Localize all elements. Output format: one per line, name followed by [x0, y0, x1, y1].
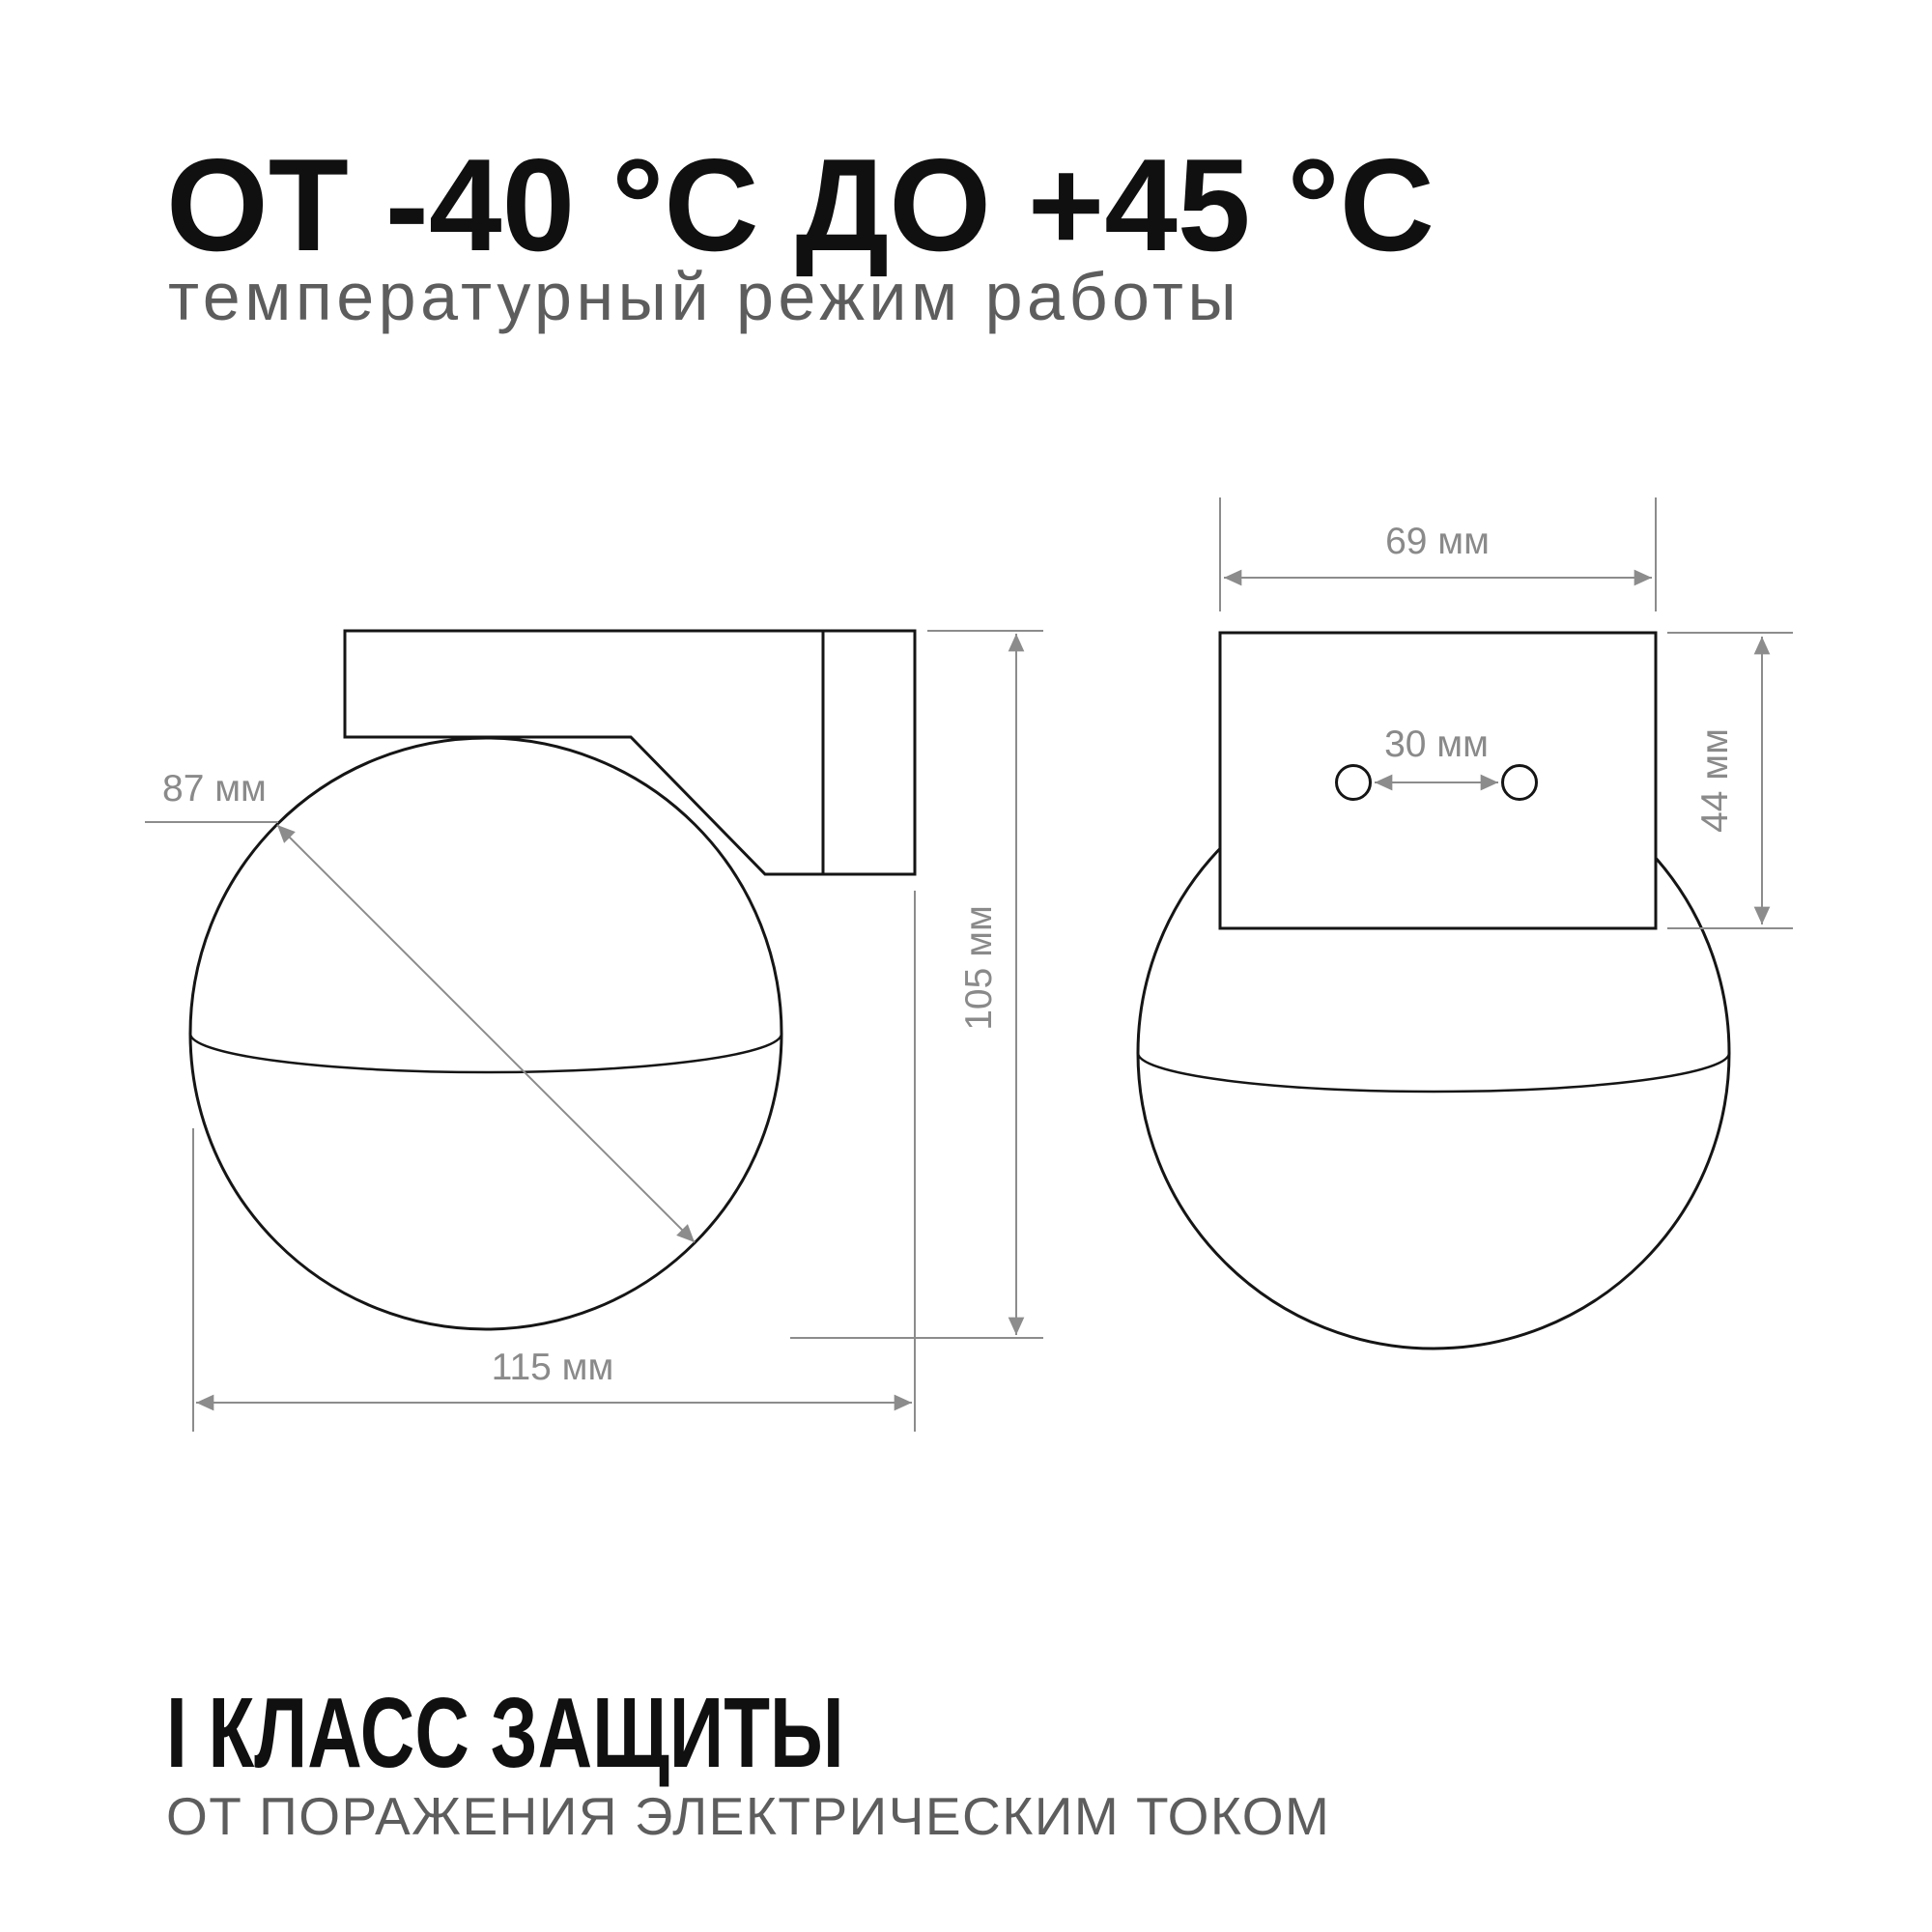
- globe-diameter-label: 87 мм: [162, 768, 267, 810]
- protection-class-subtitle: ОТ ПОРАЖЕНИЯ ЭЛЕКТРИЧЕСКИМ ТОКОМ: [166, 1790, 1330, 1843]
- bracket-height-label: 44 мм: [1694, 728, 1736, 833]
- spec-infographic: ОТ -40 °C ДО +45 °C температурный режим …: [0, 0, 1932, 1932]
- side-view: 87 мм 105 мм 115 мм: [145, 631, 1043, 1432]
- hole-spacing-label: 30 мм: [1384, 724, 1489, 765]
- bracket-width-label: 69 мм: [1385, 521, 1490, 562]
- overall-height-label: 105 мм: [958, 905, 1000, 1031]
- mounting-hole-left: [1337, 766, 1371, 800]
- overall-width-label: 115 мм: [492, 1347, 614, 1388]
- front-view-bracket: [1220, 633, 1656, 928]
- front-view: 30 мм 69 мм 44 мм: [1138, 497, 1793, 1349]
- diameter-arrow: [277, 825, 695, 1242]
- mounting-hole-right: [1503, 766, 1537, 800]
- protection-class-title: I КЛАСС ЗАЩИТЫ: [166, 1683, 844, 1782]
- side-view-bracket: [345, 631, 915, 874]
- front-view-globe-seam: [1138, 1053, 1729, 1092]
- side-view-globe-seam: [190, 1034, 781, 1072]
- technical-drawing: 87 мм 105 мм 115 мм 30 мм 69 мм: [0, 0, 1932, 1932]
